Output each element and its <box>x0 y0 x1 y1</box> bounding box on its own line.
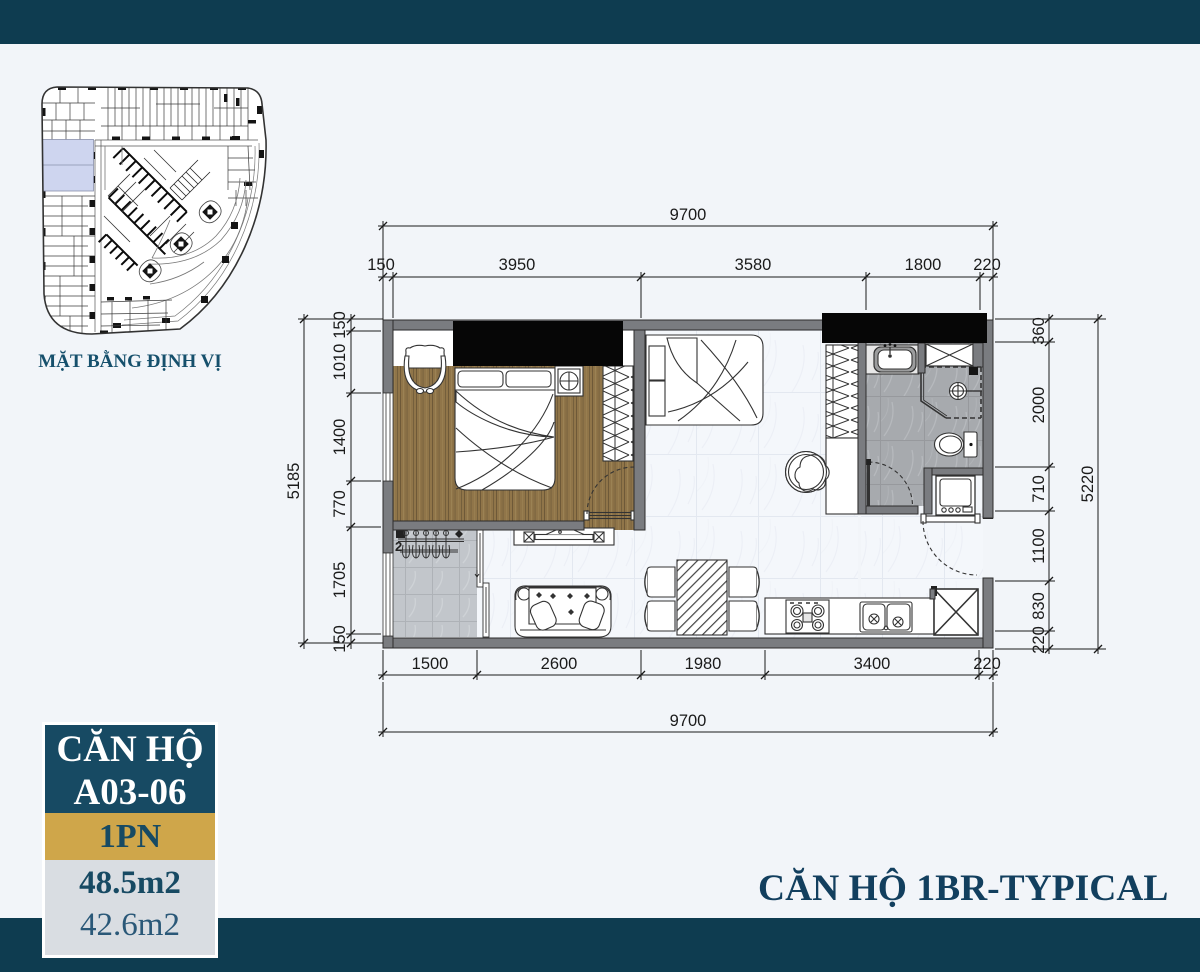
svg-text:1500: 1500 <box>412 655 449 673</box>
svg-text:770: 770 <box>331 490 349 518</box>
svg-text:830: 830 <box>1030 592 1048 620</box>
svg-text:220: 220 <box>973 256 1001 274</box>
svg-text:150: 150 <box>331 311 349 339</box>
svg-text:710: 710 <box>1030 475 1048 503</box>
svg-text:1705: 1705 <box>331 562 349 599</box>
svg-text:220: 220 <box>1030 626 1048 654</box>
svg-text:1800: 1800 <box>905 256 942 274</box>
svg-text:2: 2 <box>395 539 402 554</box>
svg-text:3580: 3580 <box>735 256 772 274</box>
svg-text:2000: 2000 <box>1030 387 1048 424</box>
svg-text:1010: 1010 <box>331 344 349 381</box>
svg-text:2600: 2600 <box>541 655 578 673</box>
svg-text:150: 150 <box>367 256 395 274</box>
svg-text:9700: 9700 <box>670 712 707 730</box>
svg-text:5220: 5220 <box>1079 466 1097 503</box>
svg-text:9700: 9700 <box>670 206 707 224</box>
svg-text:1100: 1100 <box>1030 528 1048 563</box>
svg-text:360: 360 <box>1030 317 1048 345</box>
svg-text:3400: 3400 <box>854 655 891 673</box>
svg-text:5185: 5185 <box>285 463 303 500</box>
svg-text:150: 150 <box>331 625 349 653</box>
svg-text:1400: 1400 <box>331 419 349 456</box>
svg-text:220: 220 <box>973 655 1001 673</box>
svg-text:3950: 3950 <box>499 256 536 274</box>
svg-text:1980: 1980 <box>685 655 722 673</box>
